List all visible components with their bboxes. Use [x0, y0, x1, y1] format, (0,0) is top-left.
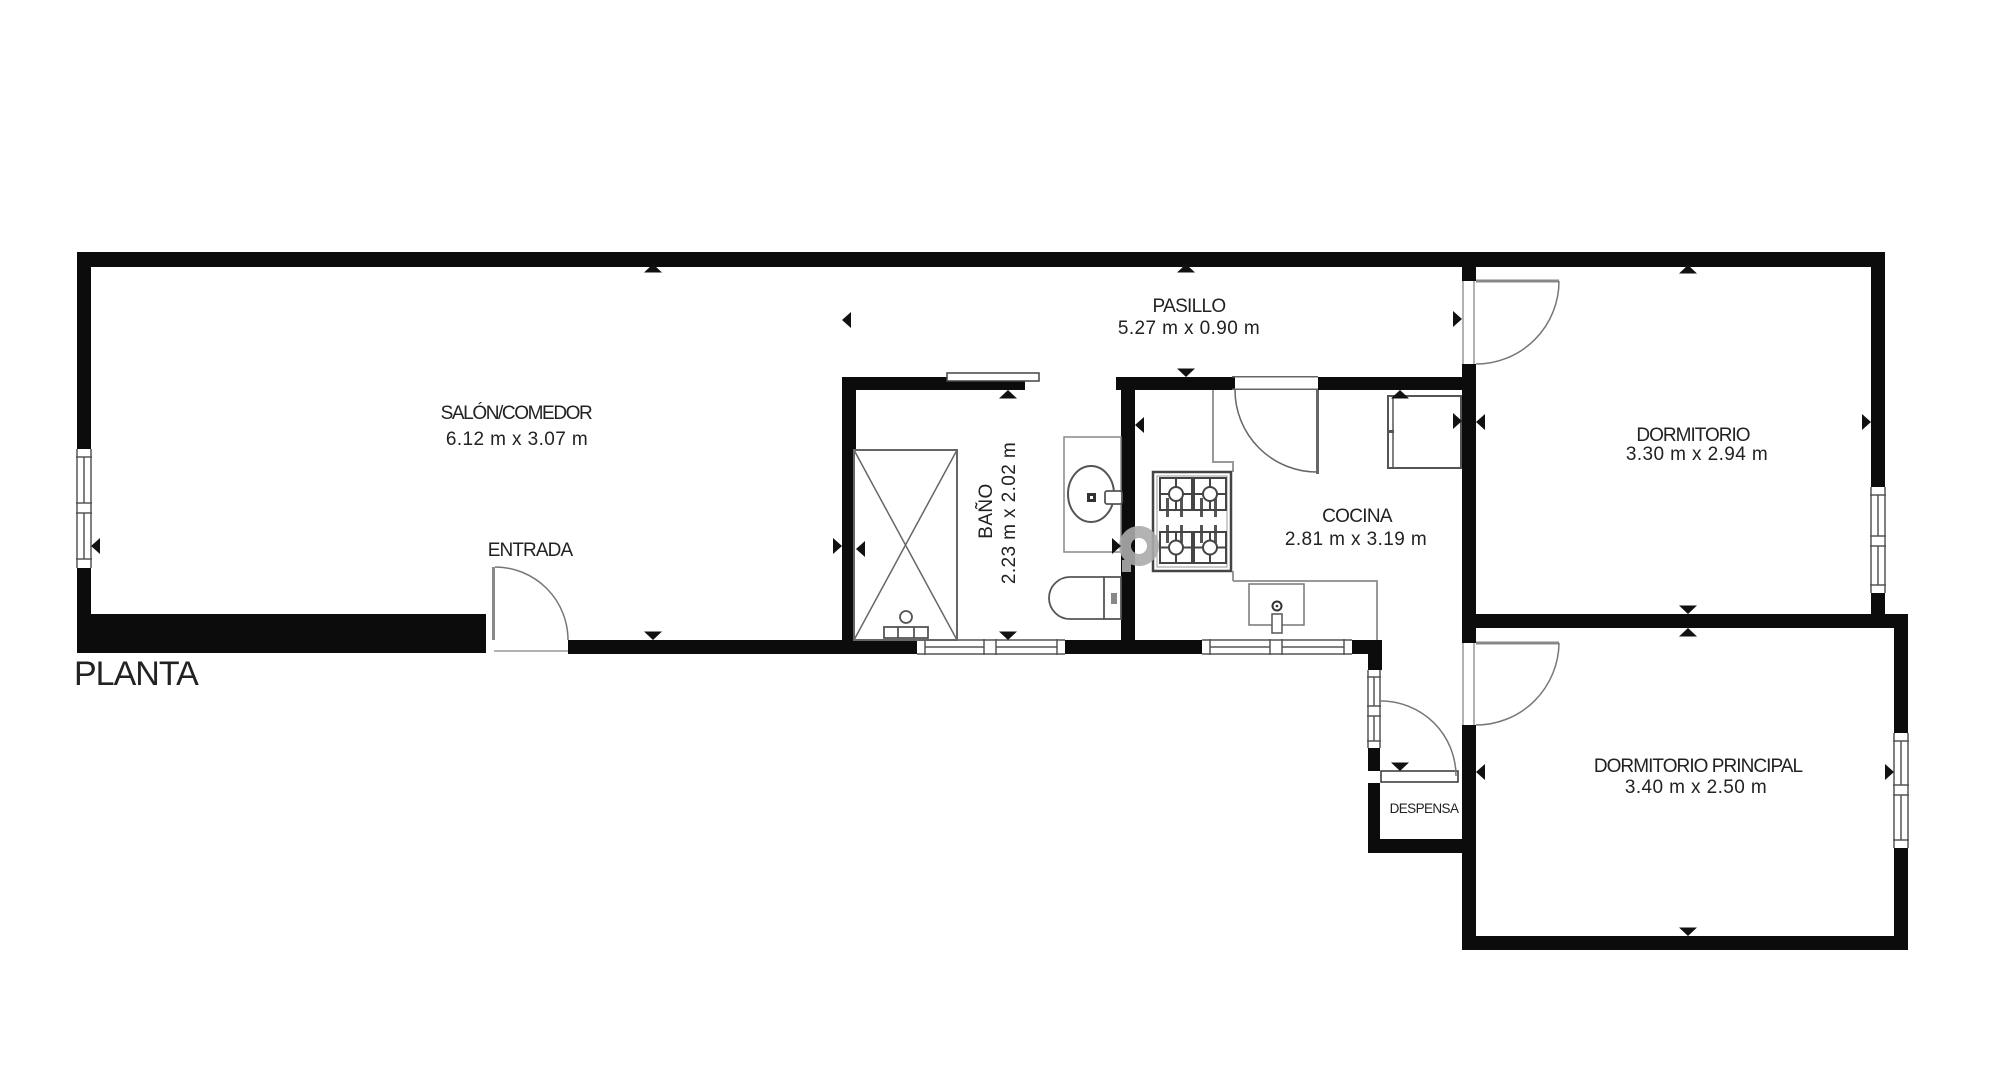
svg-text:3.30 m x 2.94 m: 3.30 m x 2.94 m — [1626, 444, 1768, 465]
svg-text:PLANTA: PLANTA — [74, 655, 199, 693]
svg-text:SALÓN/COMEDOR: SALÓN/COMEDOR — [441, 402, 592, 424]
svg-text:ENTRADA: ENTRADA — [488, 540, 574, 561]
svg-text:5.27 m x 0.90 m: 5.27 m x 0.90 m — [1118, 318, 1260, 339]
svg-text:3.40 m x 2.50 m: 3.40 m x 2.50 m — [1625, 777, 1767, 798]
svg-text:BAÑO: BAÑO — [975, 483, 997, 538]
svg-text:DESPENSA: DESPENSA — [1390, 801, 1459, 816]
svg-text:2.23 m x 2.02 m: 2.23 m x 2.02 m — [999, 442, 1020, 584]
svg-text:DORMITORIO: DORMITORIO — [1636, 425, 1749, 446]
svg-text:PASILLO: PASILLO — [1153, 296, 1226, 317]
svg-text:2.81 m x 3.19 m: 2.81 m x 3.19 m — [1285, 529, 1427, 550]
svg-text:COCINA: COCINA — [1322, 506, 1393, 527]
svg-text:6.12 m x 3.07 m: 6.12 m x 3.07 m — [446, 429, 588, 450]
svg-text:DORMITORIO PRINCIPAL: DORMITORIO PRINCIPAL — [1594, 756, 1803, 777]
